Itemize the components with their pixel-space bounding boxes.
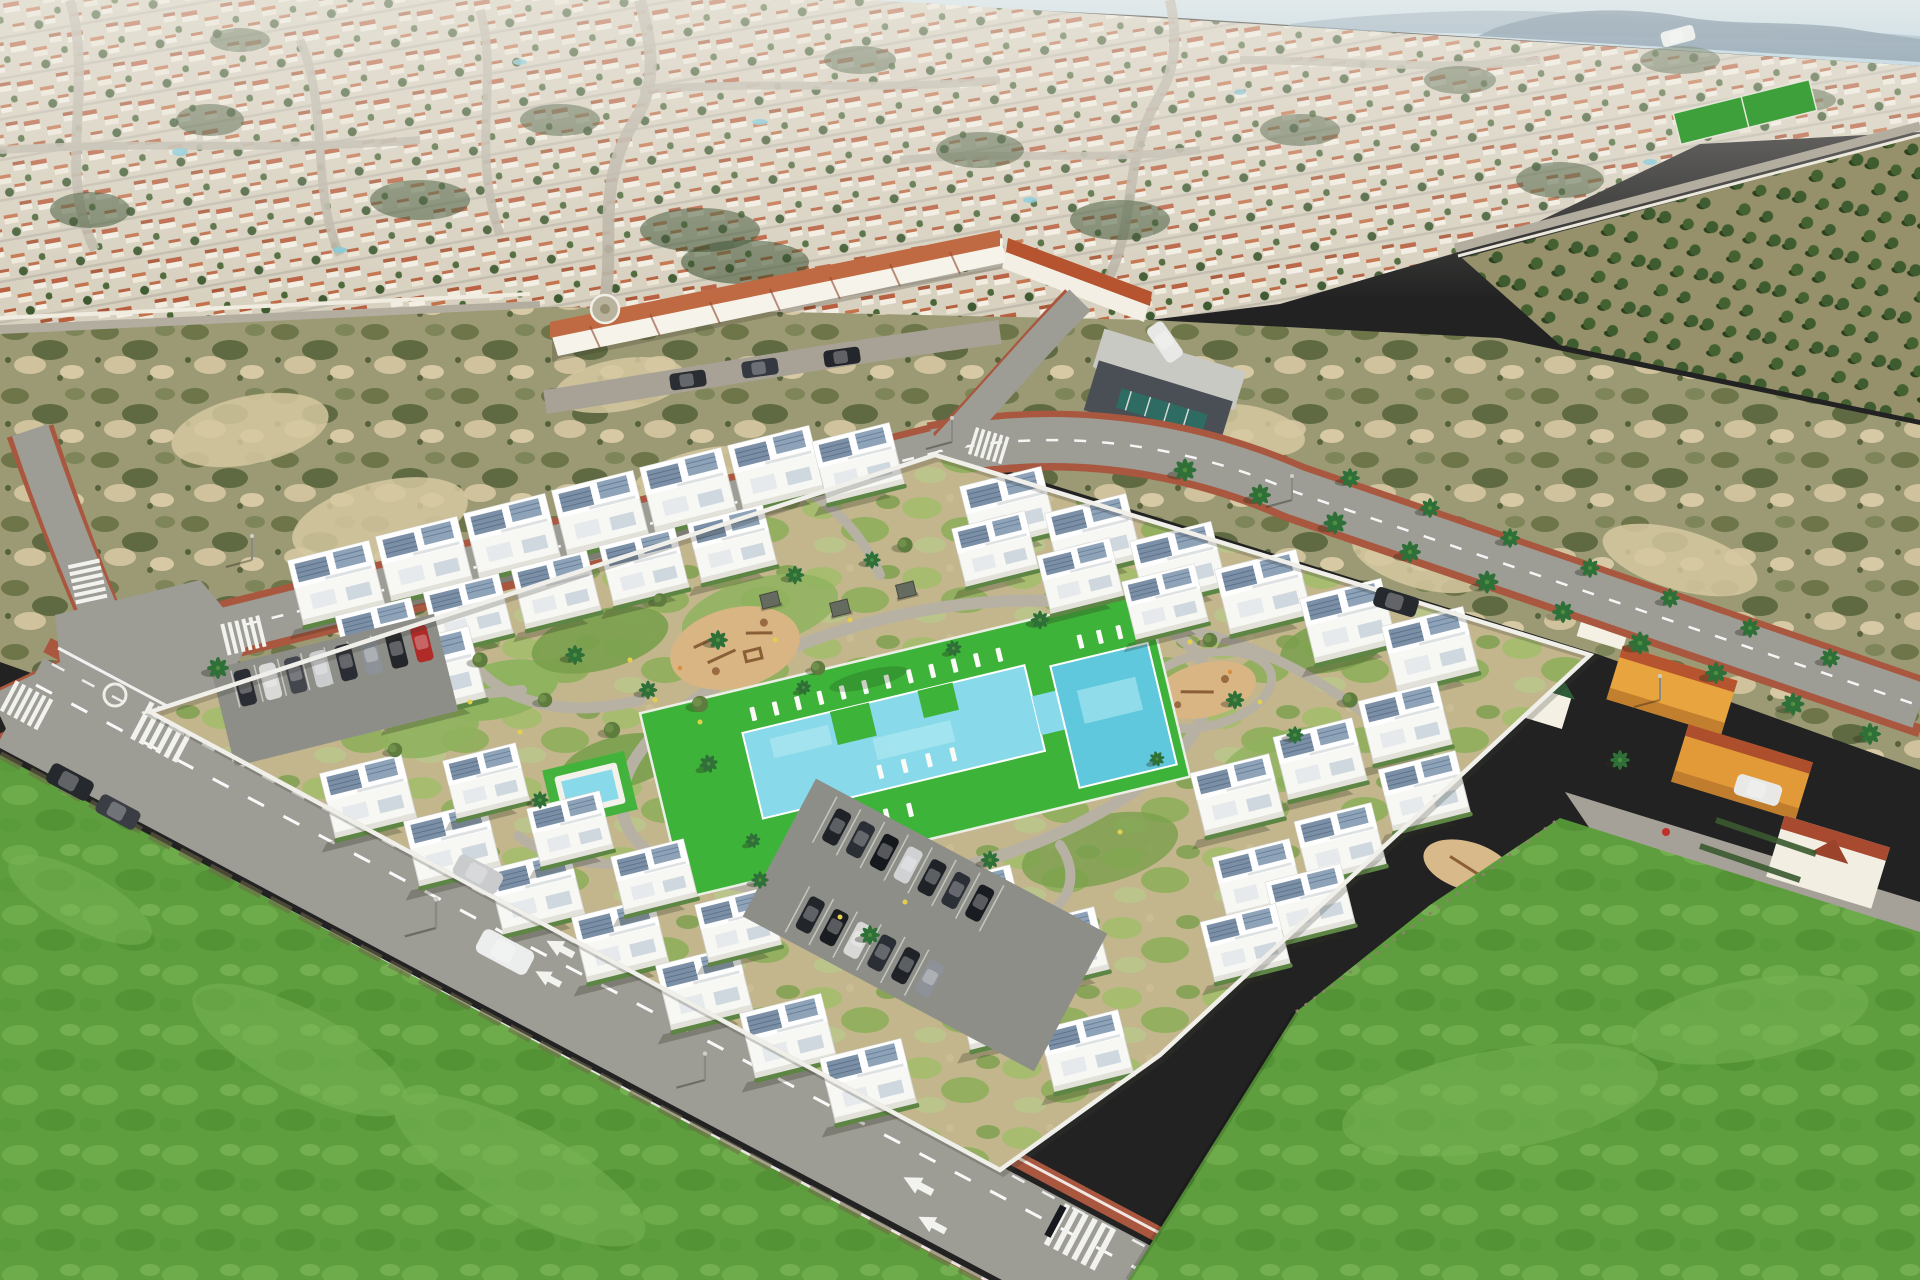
red-umbrella [1662,828,1670,836]
aerial-photo-stage [0,0,1920,1280]
roundabout [591,295,619,323]
aerial-photo [0,0,1920,1280]
